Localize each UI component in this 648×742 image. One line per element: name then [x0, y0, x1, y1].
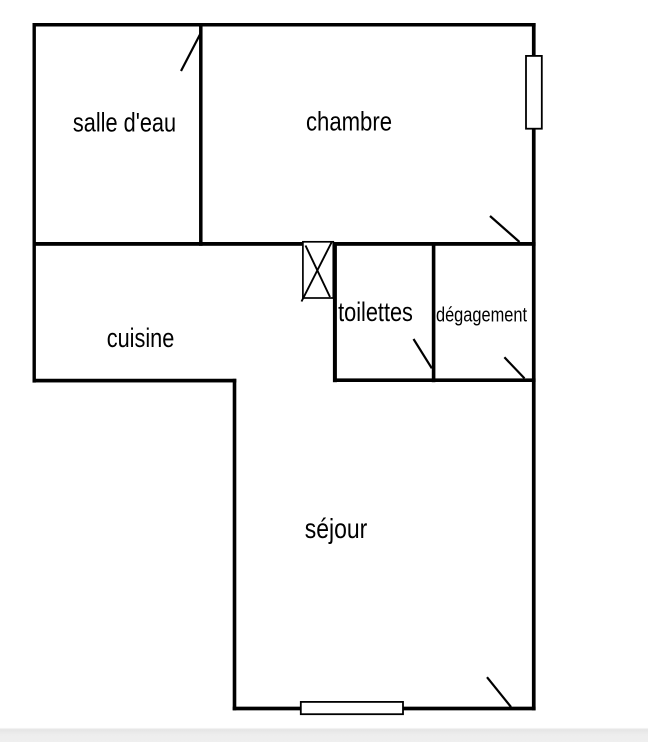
svg-text:toilettes: toilettes	[338, 298, 413, 328]
svg-text:séjour: séjour	[305, 514, 368, 545]
svg-text:salle d'eau: salle d'eau	[73, 109, 176, 139]
svg-text:cuisine: cuisine	[107, 324, 175, 354]
svg-text:dégagement: dégagement	[436, 303, 527, 326]
svg-text:chambre: chambre	[306, 108, 392, 138]
